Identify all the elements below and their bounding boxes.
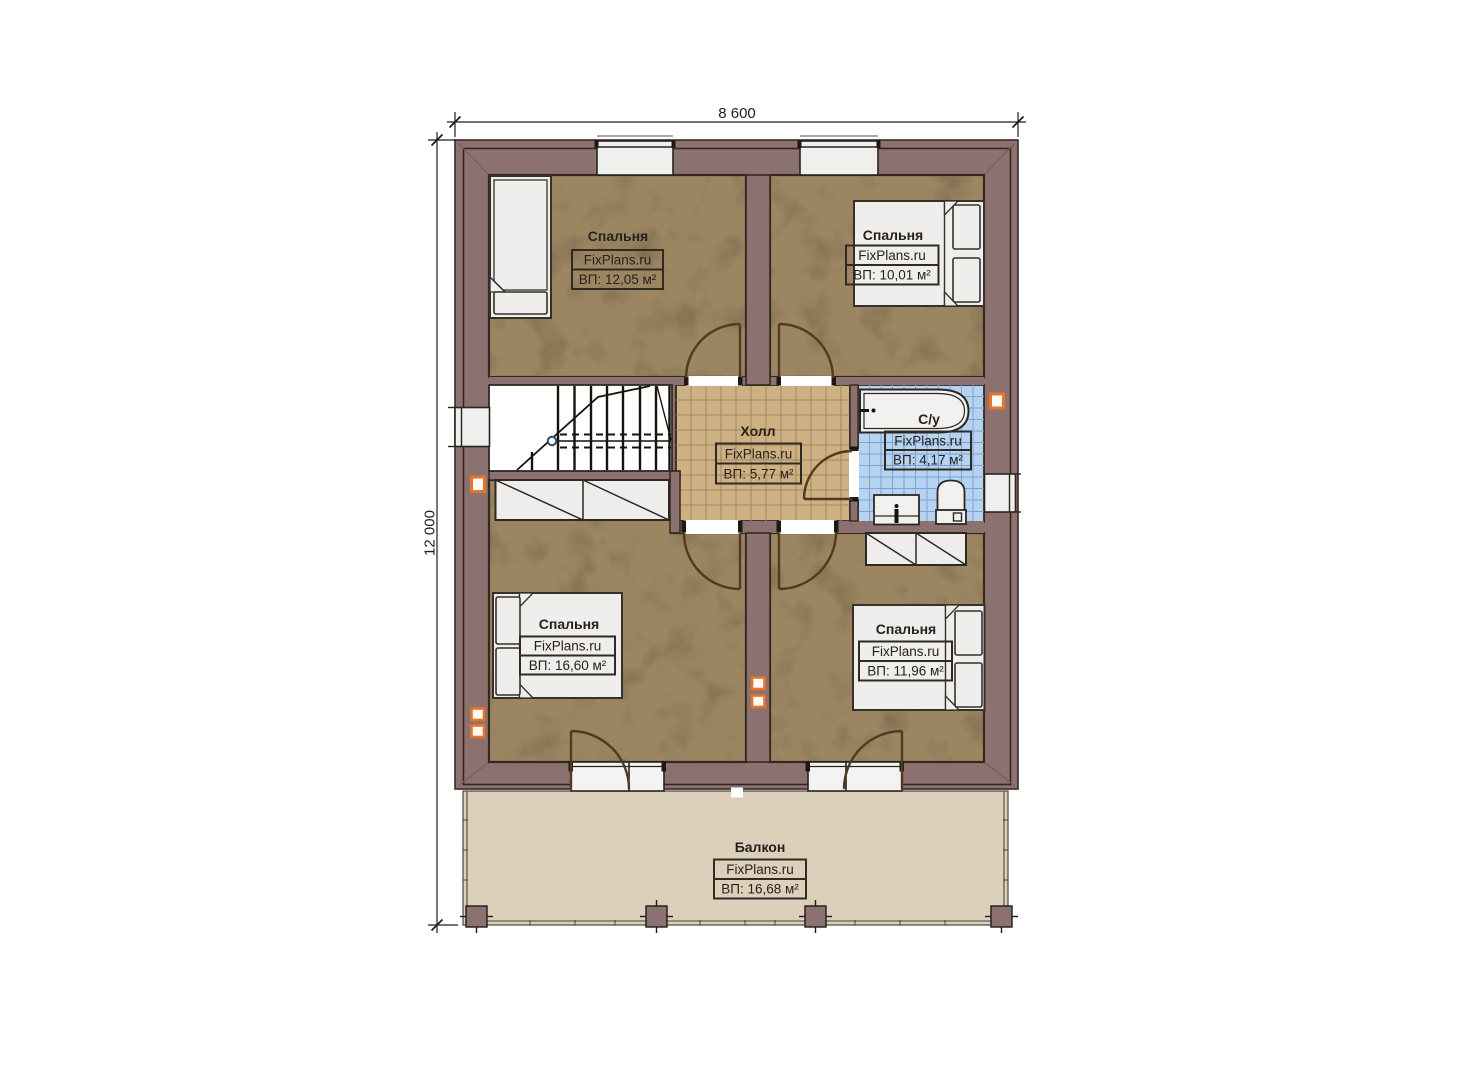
svg-text:Спальня: Спальня [588, 228, 648, 244]
svg-text:ВП: 16,60 м²: ВП: 16,60 м² [529, 658, 607, 673]
svg-text:ВП: 12,05 м²: ВП: 12,05 м² [579, 272, 657, 287]
svg-text:Холл: Холл [740, 423, 775, 439]
svg-text:ВП: 10,01 м²: ВП: 10,01 м² [853, 268, 931, 283]
svg-text:С/у: С/у [918, 411, 940, 427]
svg-text:Спальня: Спальня [539, 616, 599, 632]
svg-text:12 000: 12 000 [422, 510, 439, 556]
svg-text:Спальня: Спальня [863, 227, 923, 243]
svg-text:ВП: 16,68 м²: ВП: 16,68 м² [721, 882, 799, 897]
svg-text:FixPlans.ru: FixPlans.ru [534, 639, 602, 654]
svg-text:FixPlans.ru: FixPlans.ru [872, 644, 940, 659]
svg-text:Балкон: Балкон [735, 839, 786, 855]
svg-text:FixPlans.ru: FixPlans.ru [725, 447, 793, 462]
svg-text:ВП: 11,96 м²: ВП: 11,96 м² [867, 664, 944, 679]
svg-text:8 600: 8 600 [718, 105, 756, 122]
svg-text:ВП: 5,77 м²: ВП: 5,77 м² [723, 467, 794, 482]
svg-text:FixPlans.ru: FixPlans.ru [726, 862, 794, 877]
svg-text:FixPlans.ru: FixPlans.ru [894, 434, 962, 449]
svg-text:FixPlans.ru: FixPlans.ru [858, 248, 926, 263]
svg-text:FixPlans.ru: FixPlans.ru [584, 253, 652, 268]
svg-text:Спальня: Спальня [876, 621, 936, 637]
svg-text:ВП: 4,17 м²: ВП: 4,17 м² [893, 453, 964, 468]
